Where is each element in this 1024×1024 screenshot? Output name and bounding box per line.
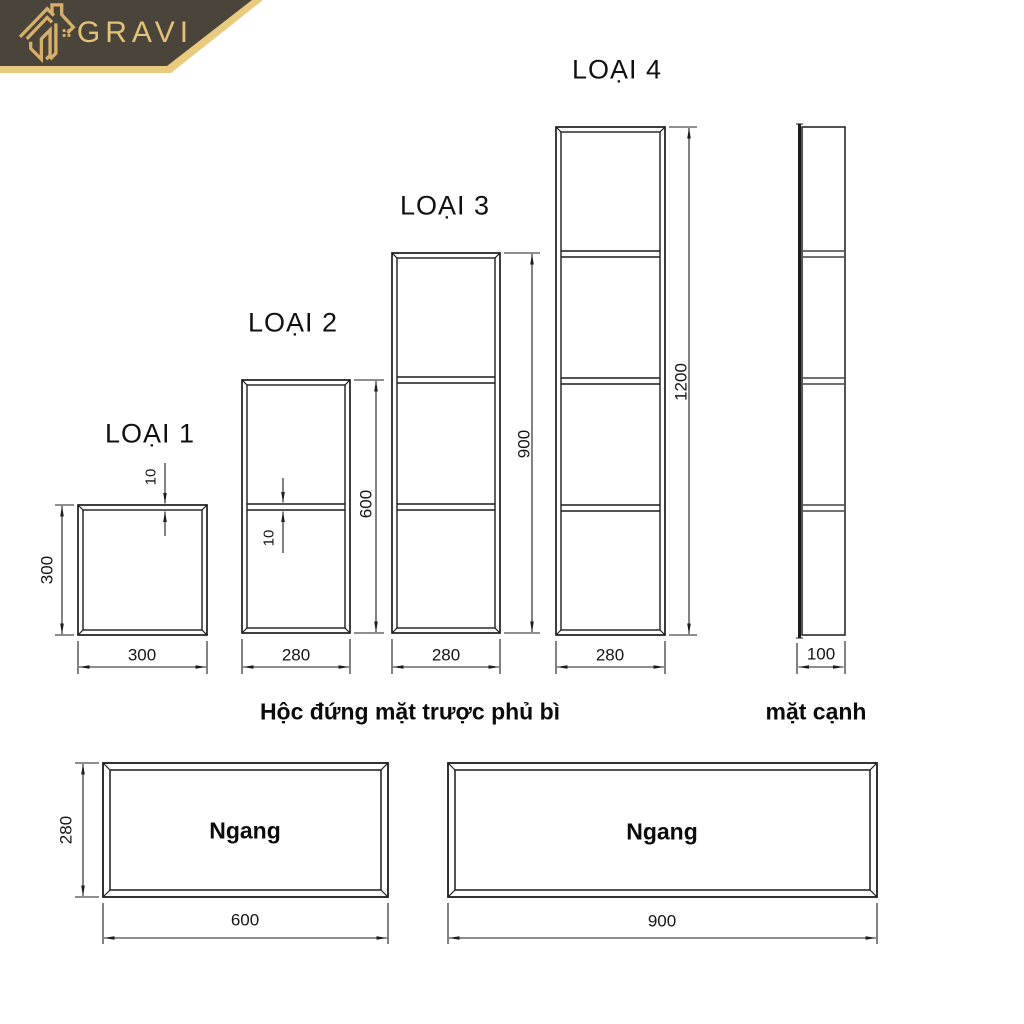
- brand-banner: GRAVI: [0, 0, 280, 80]
- loai2-drawing: [242, 380, 384, 674]
- side-view-caption: mặt cạnh: [766, 701, 867, 724]
- loai1-width-dim: 300: [128, 647, 156, 664]
- loai2-height-dim: 600: [358, 490, 375, 518]
- loai1-title: LOẠI 1: [105, 421, 195, 448]
- ngang1-height-dim: 280: [58, 816, 75, 844]
- loai3-title: LOẠI 3: [400, 193, 490, 220]
- loai3-height-dim: 900: [516, 430, 533, 458]
- ngang1-label: Ngang: [209, 820, 281, 843]
- ngang1-width-dim: 600: [231, 912, 259, 929]
- loai1-thickness-dim: 10: [144, 469, 159, 486]
- loai3-drawing: [392, 253, 540, 674]
- loai1-height-dim: 300: [39, 556, 56, 584]
- side-width-dim: 100: [807, 646, 835, 663]
- loai4-title: LOẠI 4: [572, 57, 662, 84]
- ngang2-label: Ngang: [626, 821, 698, 844]
- technical-drawing: [0, 0, 1024, 1024]
- loai2-thickness-dim: 10: [262, 530, 277, 547]
- loai4-width-dim: 280: [596, 647, 624, 664]
- product-dimension-sheet: GRAVI LOẠI 1 LOẠI 2 LOẠI 3 LOẠI 4 300 10…: [0, 0, 1024, 1024]
- ngang2-width-dim: 900: [648, 913, 676, 930]
- loai3-width-dim: 280: [432, 647, 460, 664]
- loai1-drawing: [55, 463, 207, 674]
- side-view-drawing: [796, 124, 845, 675]
- loai2-title: LOẠI 2: [248, 310, 338, 337]
- brand-text: GRAVI: [77, 16, 193, 50]
- loai2-width-dim: 280: [282, 647, 310, 664]
- loai4-height-dim: 1200: [673, 363, 690, 401]
- front-view-caption: Hộc đứng mặt trược phủ bì: [260, 701, 560, 724]
